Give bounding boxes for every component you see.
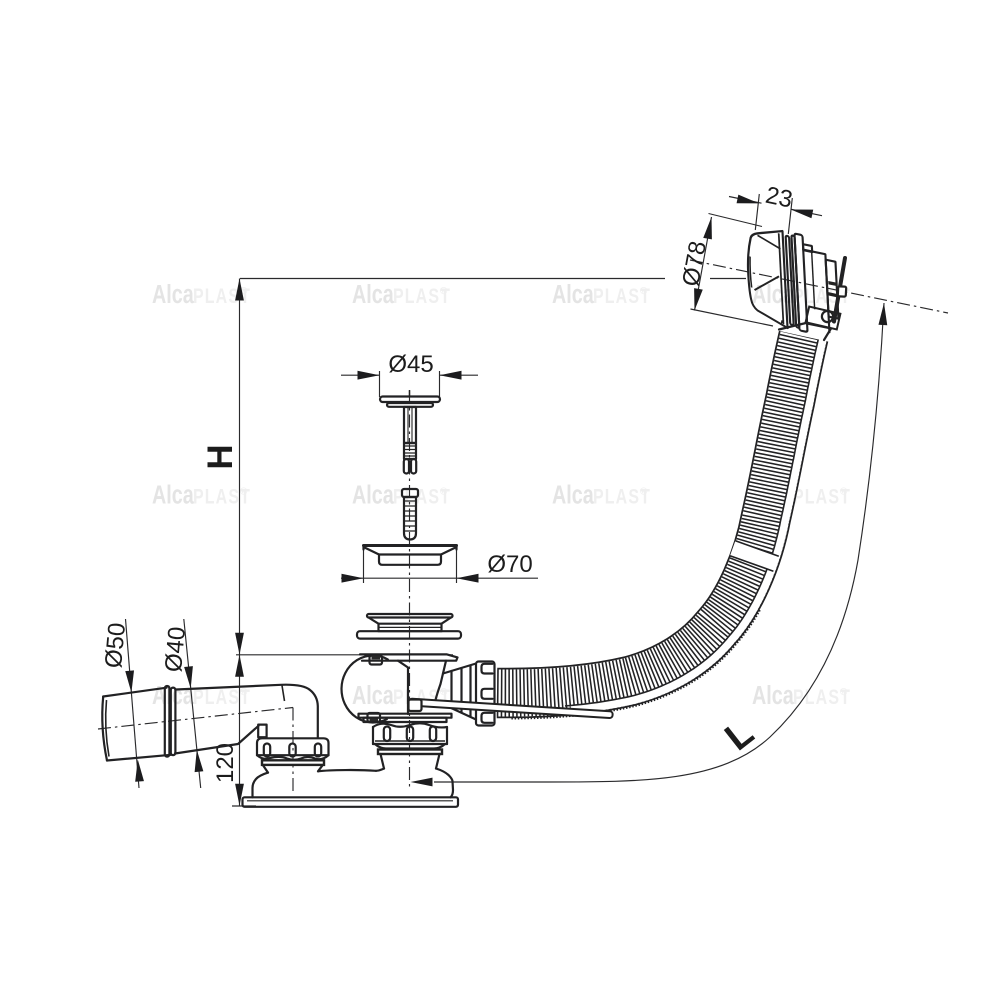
svg-text:23: 23 bbox=[763, 182, 795, 214]
svg-text:Ø45: Ø45 bbox=[388, 351, 433, 378]
svg-text:Ø50: Ø50 bbox=[100, 622, 131, 670]
svg-text:H: H bbox=[201, 444, 240, 469]
svg-text:Alca: Alca bbox=[152, 279, 194, 308]
svg-text:120: 120 bbox=[212, 743, 239, 783]
svg-text:Ø70: Ø70 bbox=[487, 551, 532, 578]
svg-text:Ø40: Ø40 bbox=[160, 626, 191, 674]
